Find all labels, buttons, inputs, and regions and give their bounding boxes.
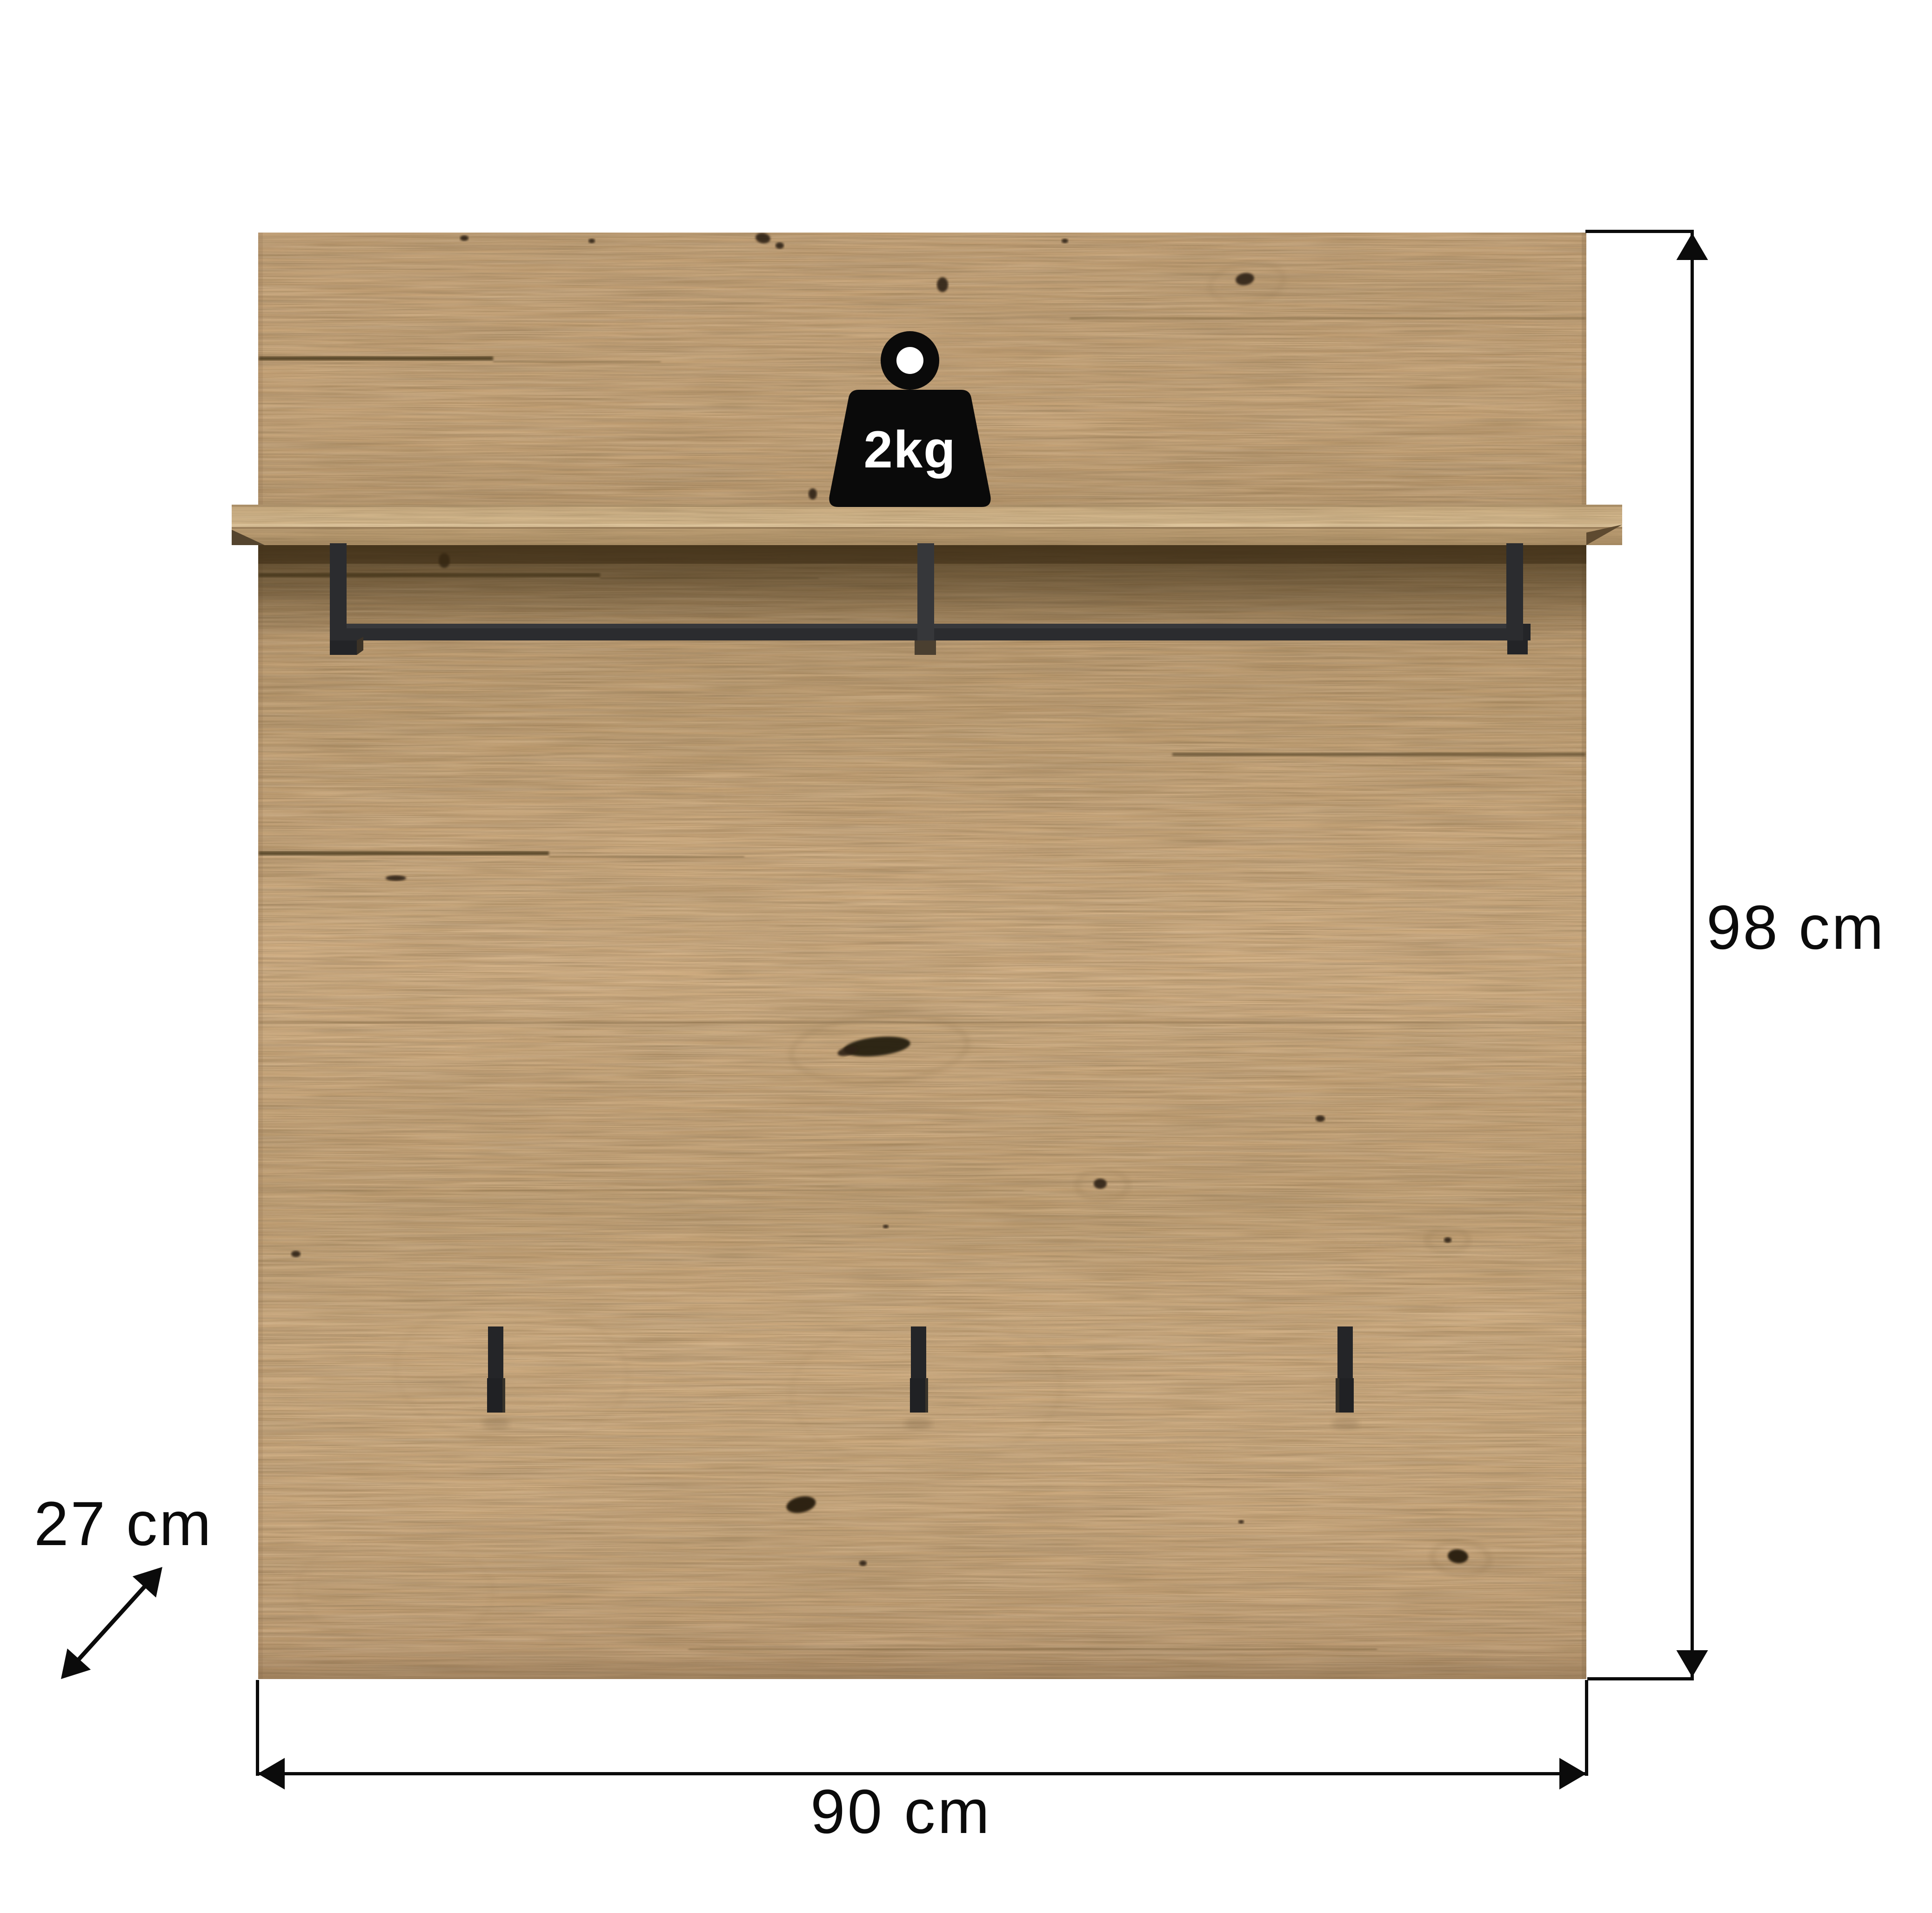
svg-text:27 cm: 27 cm — [34, 1489, 213, 1559]
svg-text:2kg: 2kg — [864, 420, 956, 479]
svg-text:90 cm: 90 cm — [810, 1777, 992, 1846]
svg-text:98 cm: 98 cm — [1706, 893, 1885, 962]
